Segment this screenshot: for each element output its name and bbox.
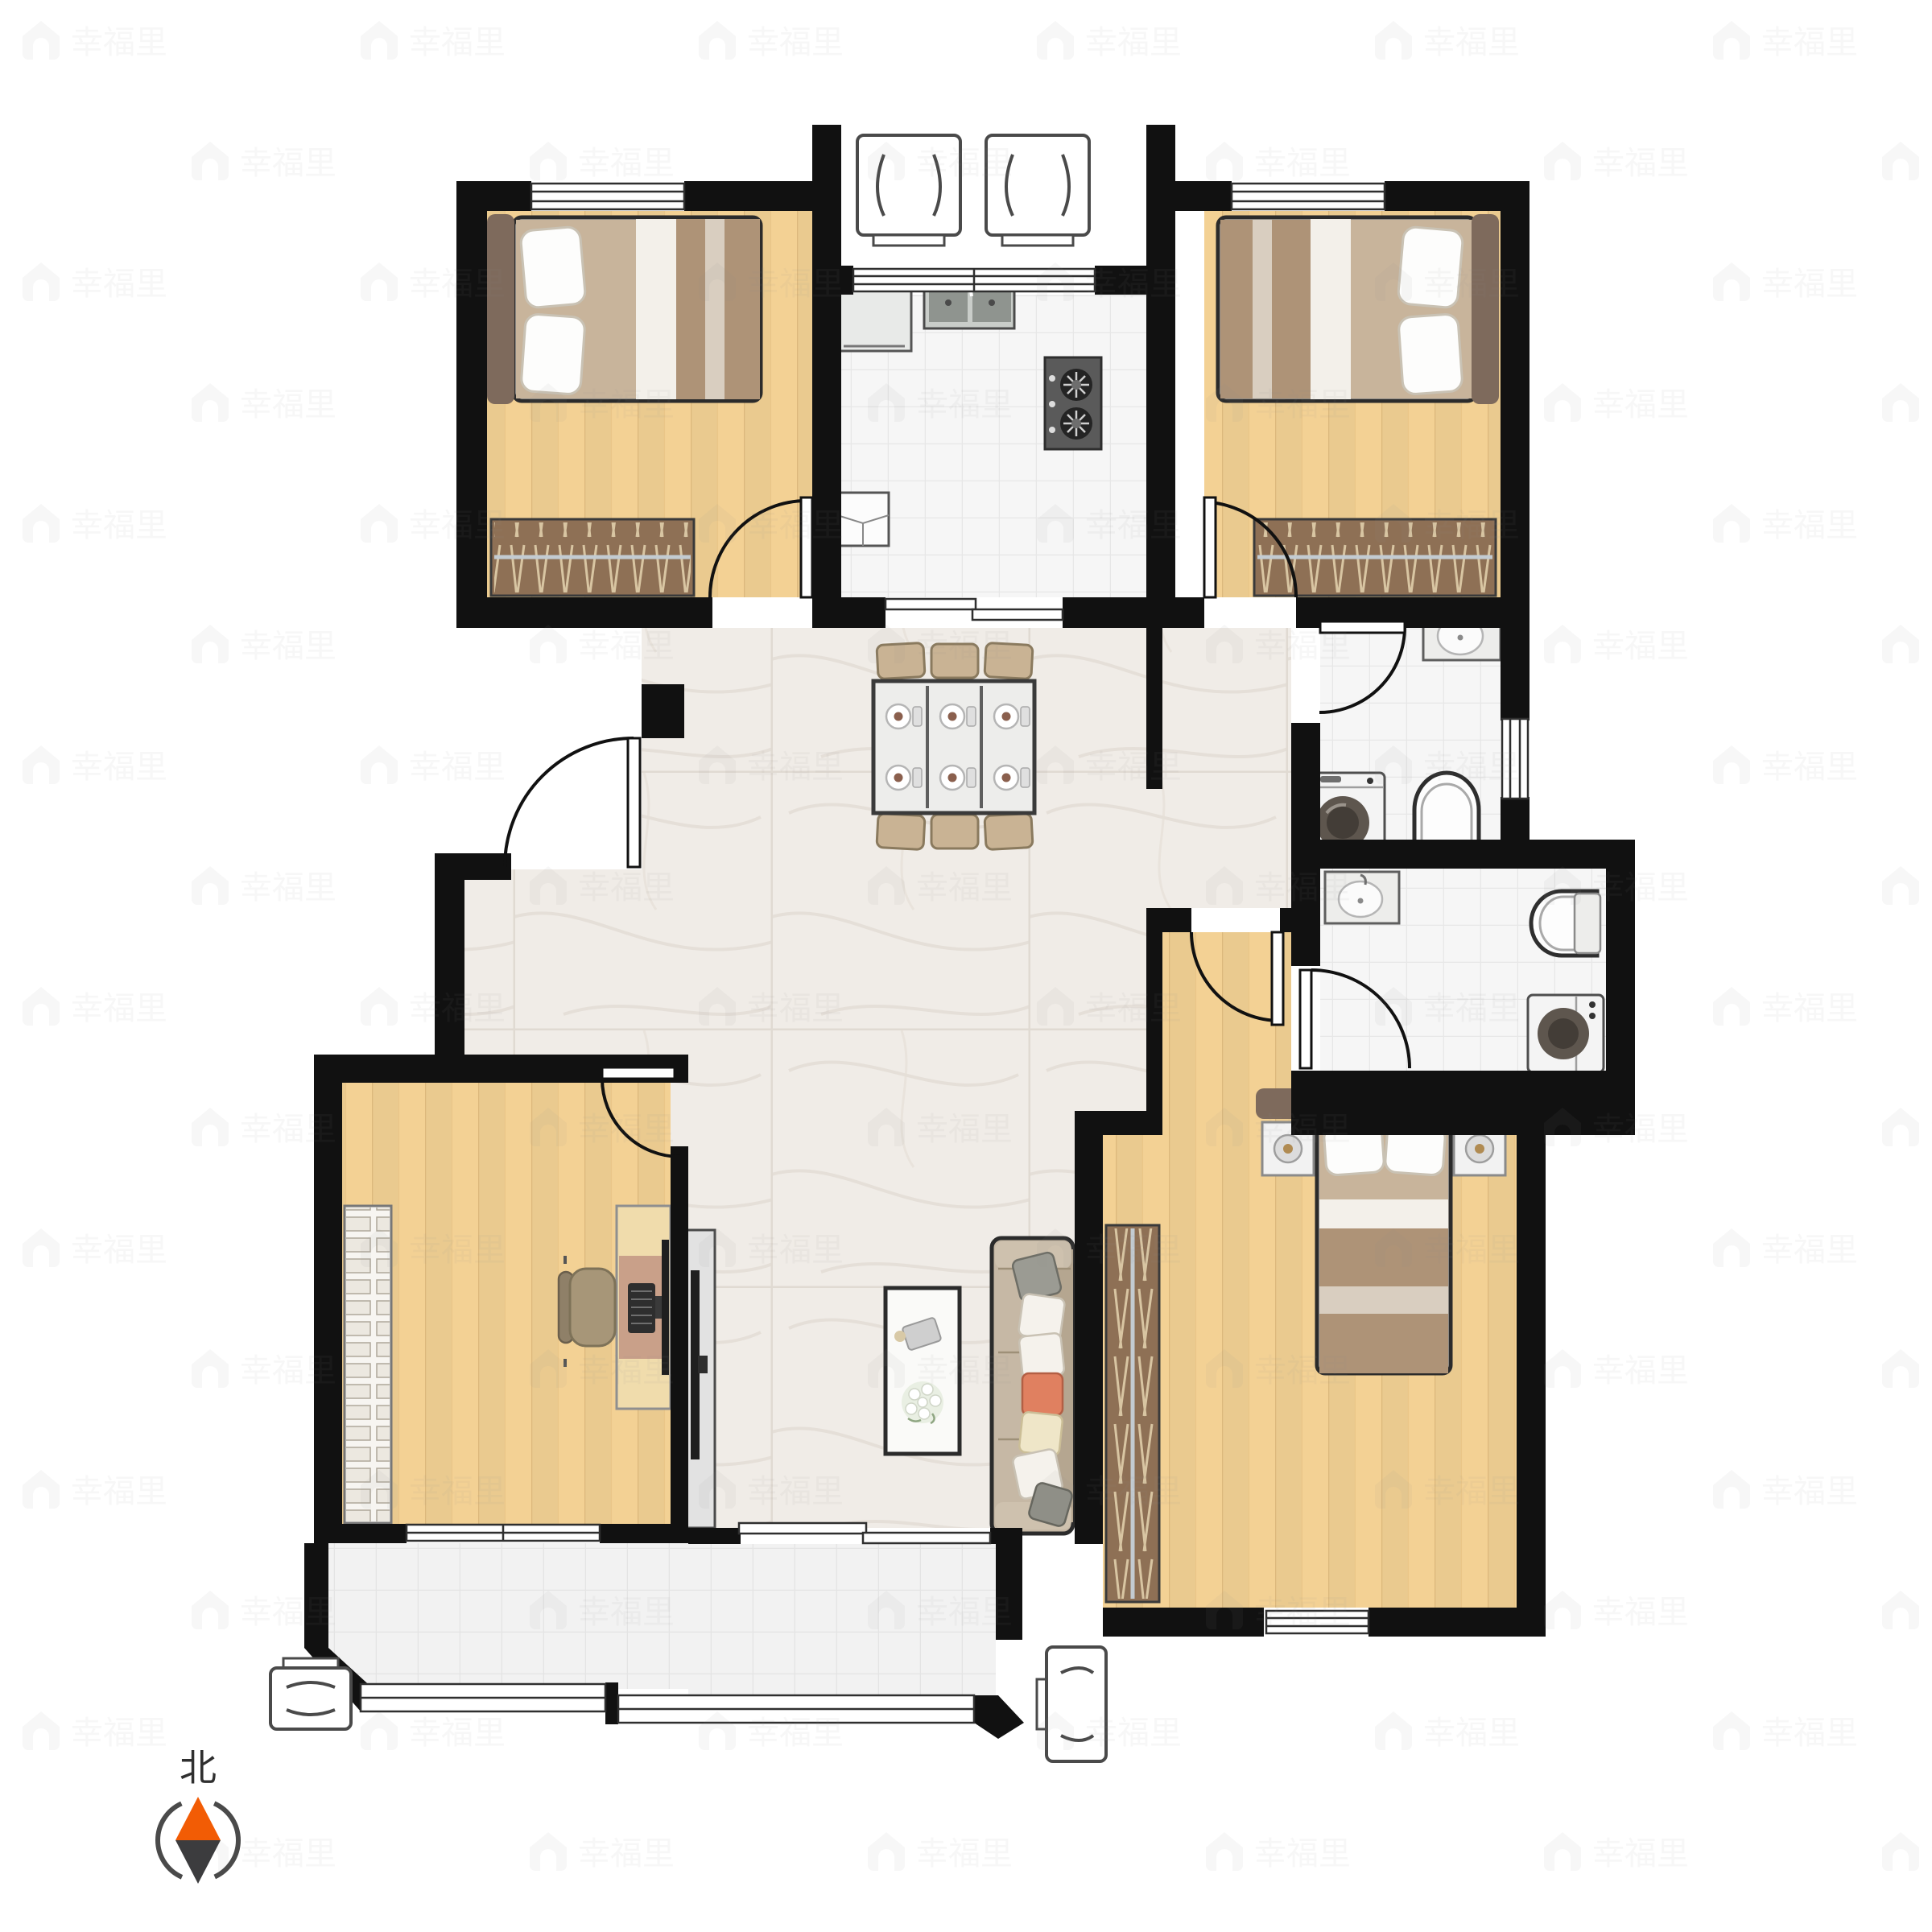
- compass-north-label: 北: [180, 1747, 217, 1789]
- floor-plan-page: 幸福里 幸福里: [0, 0, 1932, 1932]
- watermark-layer: [0, 0, 1932, 1932]
- floor-plan: 幸福里 幸福里: [0, 0, 1932, 1932]
